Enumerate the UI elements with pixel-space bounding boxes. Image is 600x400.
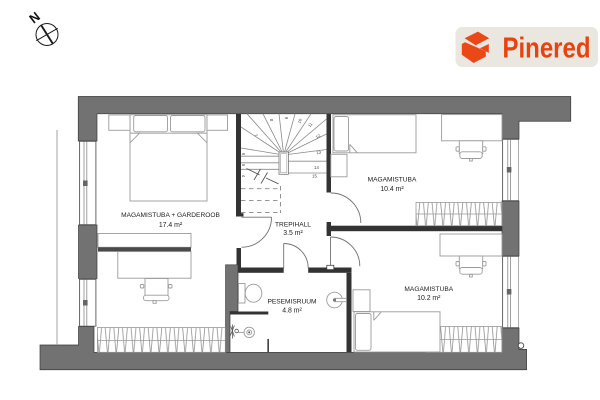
svg-text:4.8 m²: 4.8 m²	[282, 307, 302, 314]
svg-text:MAGAMISTUBA + GARDEROOB: MAGAMISTUBA + GARDEROOB	[121, 212, 220, 219]
svg-text:MAGAMISTUBA: MAGAMISTUBA	[404, 286, 453, 293]
svg-text:10.4 m²: 10.4 m²	[380, 186, 404, 193]
svg-text:10.2 m²: 10.2 m²	[417, 295, 441, 302]
svg-text:3.5 m²: 3.5 m²	[283, 230, 303, 237]
svg-text:Pinered: Pinered	[503, 32, 591, 64]
svg-text:PESEMISRUUM: PESEMISRUUM	[267, 299, 316, 306]
svg-text:TREPIHALL: TREPIHALL	[275, 221, 311, 228]
svg-text:17.4 m²: 17.4 m²	[159, 222, 183, 229]
svg-text:15: 15	[312, 174, 317, 179]
svg-text:14: 14	[314, 165, 319, 170]
svg-text:MAGAMISTUBA: MAGAMISTUBA	[368, 177, 417, 184]
